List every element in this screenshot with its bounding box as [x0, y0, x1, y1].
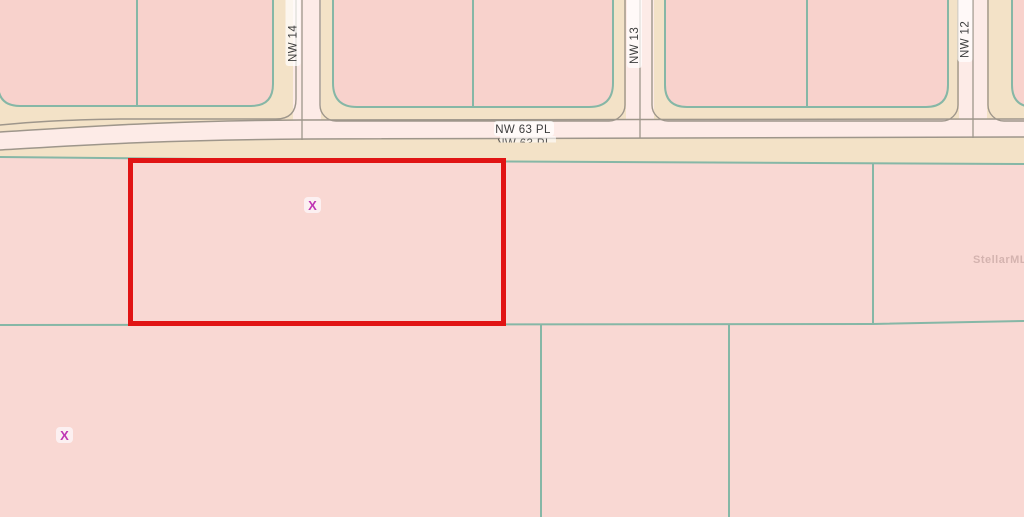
- map-viewport[interactable]: NW 63 PL NW 63 PL NW 14 NW 13 NW 12 X X …: [0, 0, 1024, 517]
- street-label-nw63pl: NW 63 PL: [494, 121, 554, 136]
- street-label-nw13: NW 13: [627, 0, 642, 68]
- street-label-text: NW 14: [288, 25, 300, 62]
- street-label-text: NW 13: [629, 27, 641, 64]
- x-marker: X: [304, 197, 321, 213]
- lower-parcels-ground: [0, 157, 1024, 517]
- top-parcel-groups: [0, 0, 1024, 107]
- watermark-text: StellarMLS: [973, 254, 1024, 266]
- street-label-text: NW 12: [960, 21, 972, 58]
- parcel-group-4: [1012, 0, 1024, 107]
- parcel-map-canvas[interactable]: NW 63 PL NW 63 PL NW 14 NW 13 NW 12 X X …: [0, 0, 1024, 517]
- street-label-nw12: NW 12: [958, 0, 973, 62]
- x-marker: X: [56, 427, 73, 443]
- street-label-text: NW 63 PL: [495, 124, 551, 136]
- street-label-nw14: NW 14: [286, 0, 301, 66]
- x-marker-glyph: X: [308, 198, 317, 213]
- x-marker-glyph: X: [60, 428, 69, 443]
